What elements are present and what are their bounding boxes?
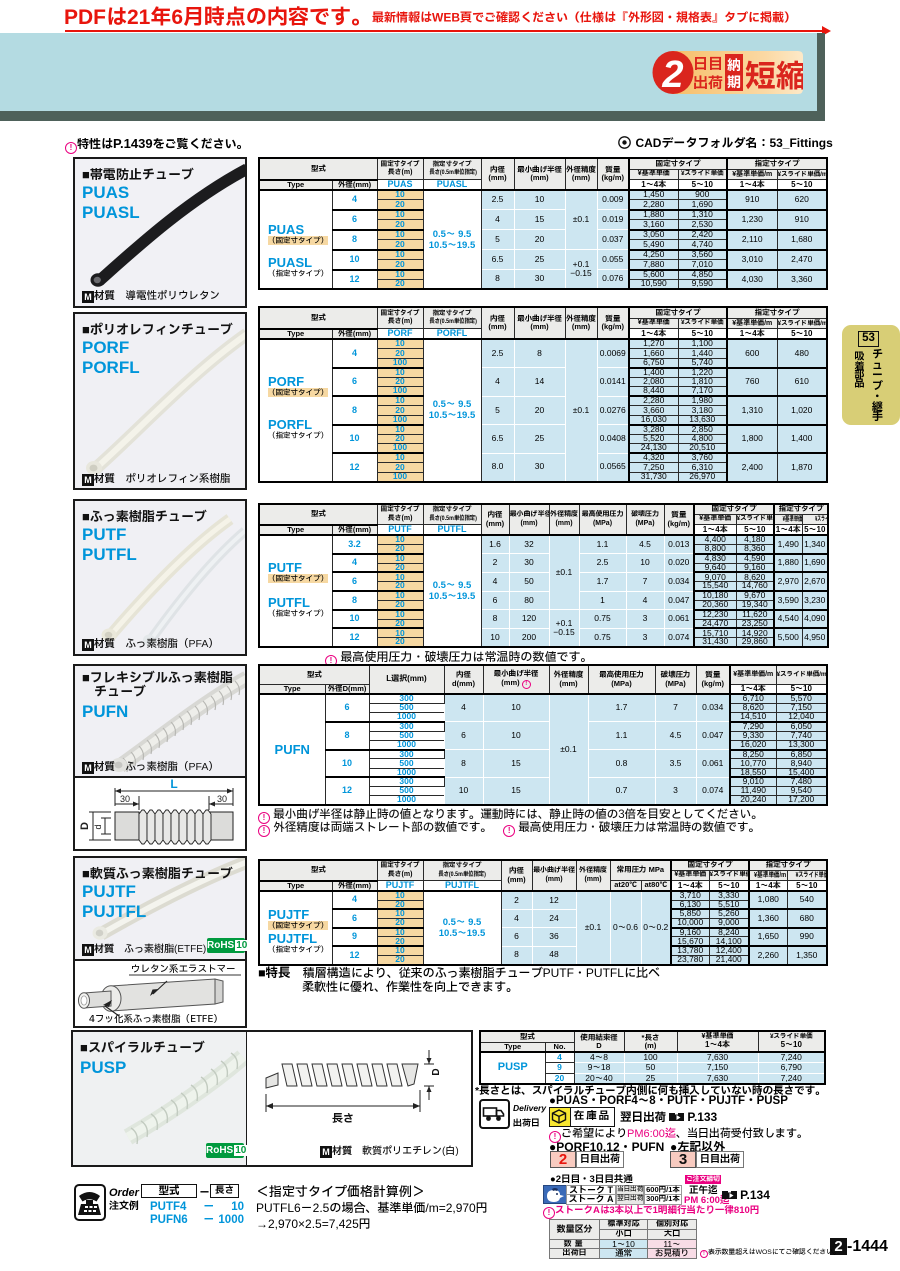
- svg-text:短縮: 短縮: [745, 54, 803, 95]
- svg-text:L: L: [170, 778, 177, 791]
- svg-text:2: 2: [661, 54, 683, 95]
- svg-text:4フッ化系ふっ素樹脂（ETFE）: 4フッ化系ふっ素樹脂（ETFE）: [89, 1013, 223, 1024]
- svg-text:30: 30: [120, 794, 130, 804]
- svg-text:D: D: [431, 1068, 442, 1075]
- svg-text:D: D: [79, 822, 91, 830]
- svg-text:30: 30: [217, 794, 227, 804]
- svg-text:期: 期: [727, 73, 741, 94]
- svg-text:長さ: 長さ: [332, 1110, 354, 1127]
- svg-text:出荷: 出荷: [693, 72, 723, 95]
- svg-text:d: d: [93, 824, 103, 829]
